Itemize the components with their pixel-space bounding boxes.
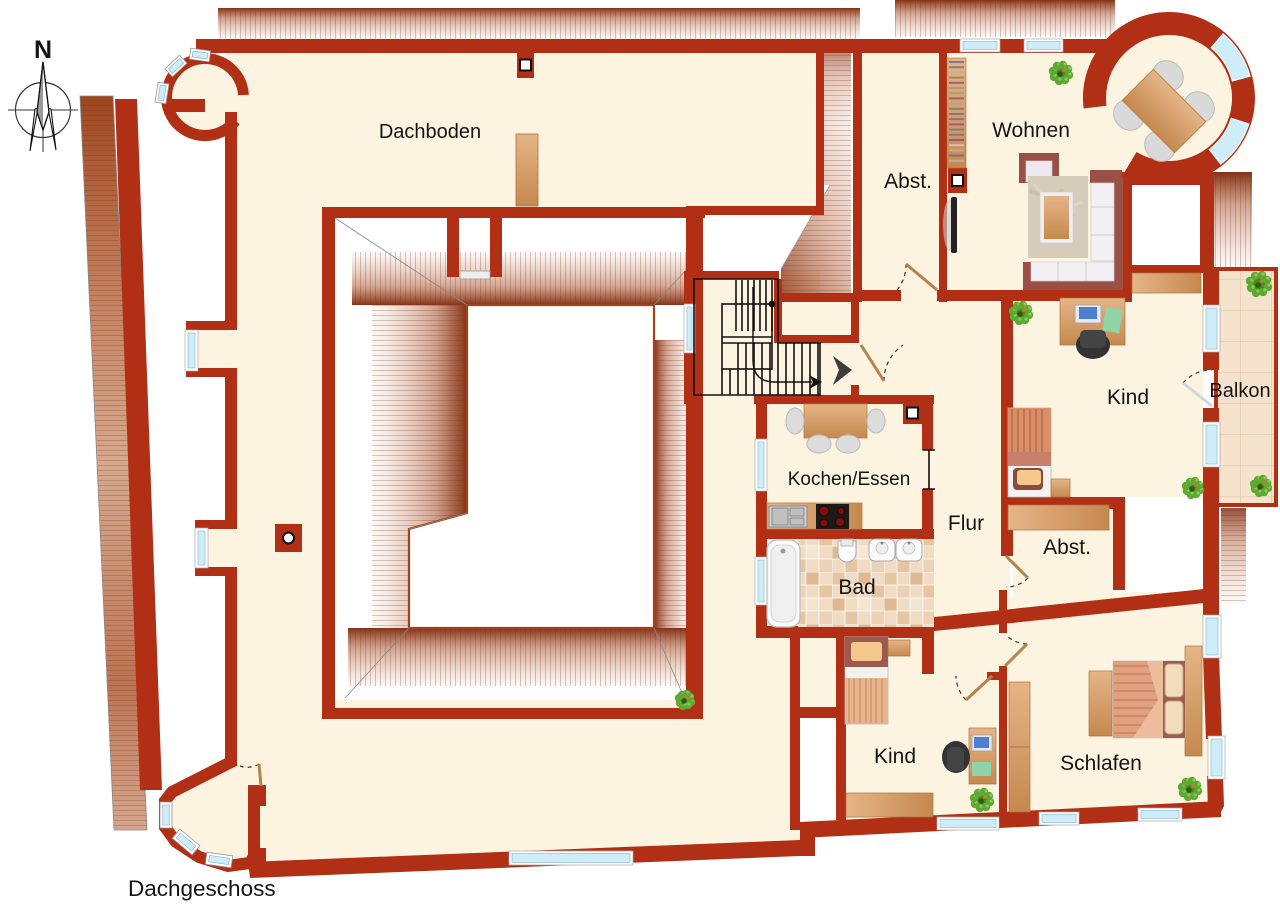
svg-text:Kind: Kind (1107, 386, 1149, 409)
svg-text:Abst.: Abst. (884, 170, 932, 193)
svg-text:Schlafen: Schlafen (1060, 752, 1142, 775)
svg-text:Kind: Kind (874, 745, 916, 768)
svg-text:Dachboden: Dachboden (379, 121, 481, 143)
svg-text:Abst.: Abst. (1043, 536, 1091, 559)
svg-text:Flur: Flur (948, 512, 984, 535)
svg-text:Kochen/Essen: Kochen/Essen (788, 469, 911, 490)
svg-text:Dachgeschoss: Dachgeschoss (128, 876, 276, 901)
svg-text:Wohnen: Wohnen (992, 119, 1070, 142)
svg-text:Bad: Bad (838, 576, 875, 599)
svg-text:Balkon: Balkon (1209, 380, 1270, 402)
svg-text:N: N (34, 36, 52, 64)
